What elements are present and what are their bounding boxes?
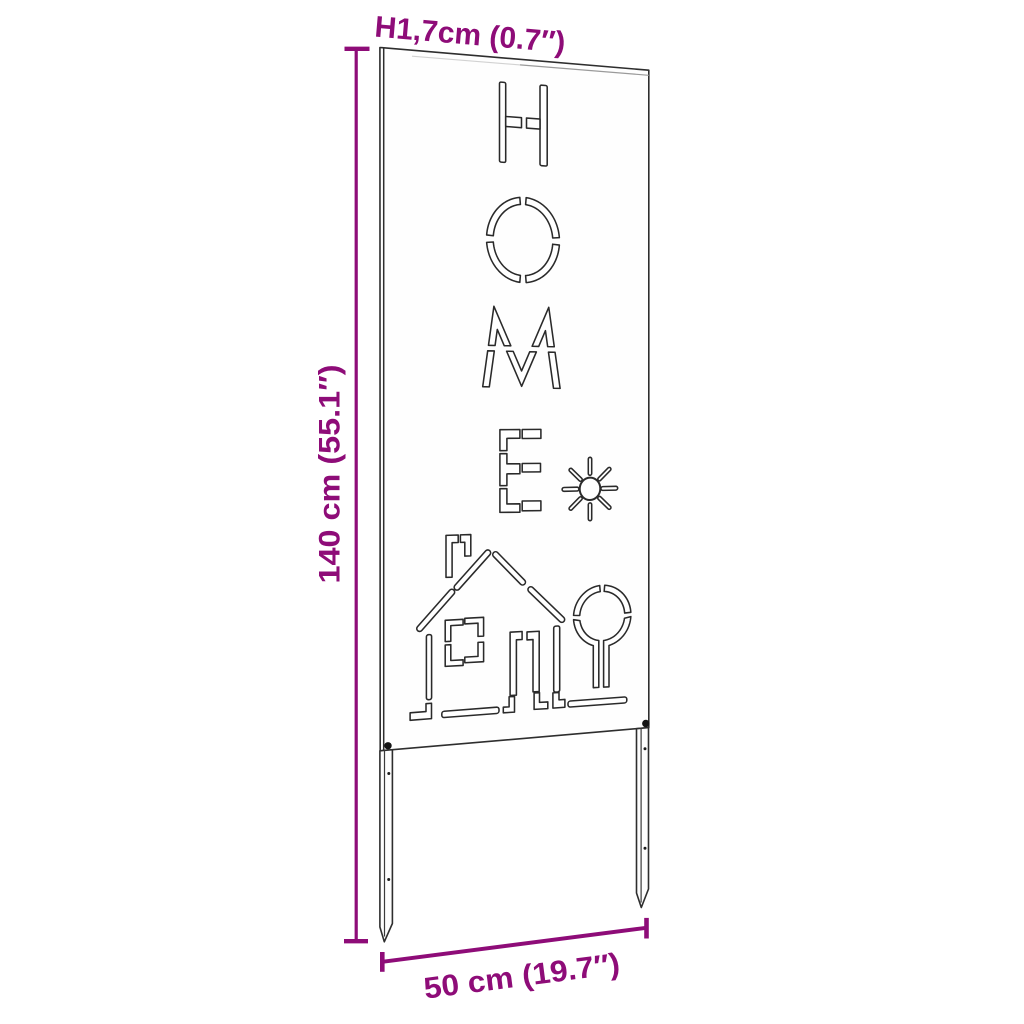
- svg-text:140 cm (55.1″): 140 cm (55.1″): [313, 364, 347, 583]
- svg-text:50 cm (19.7″): 50 cm (19.7″): [422, 946, 622, 1005]
